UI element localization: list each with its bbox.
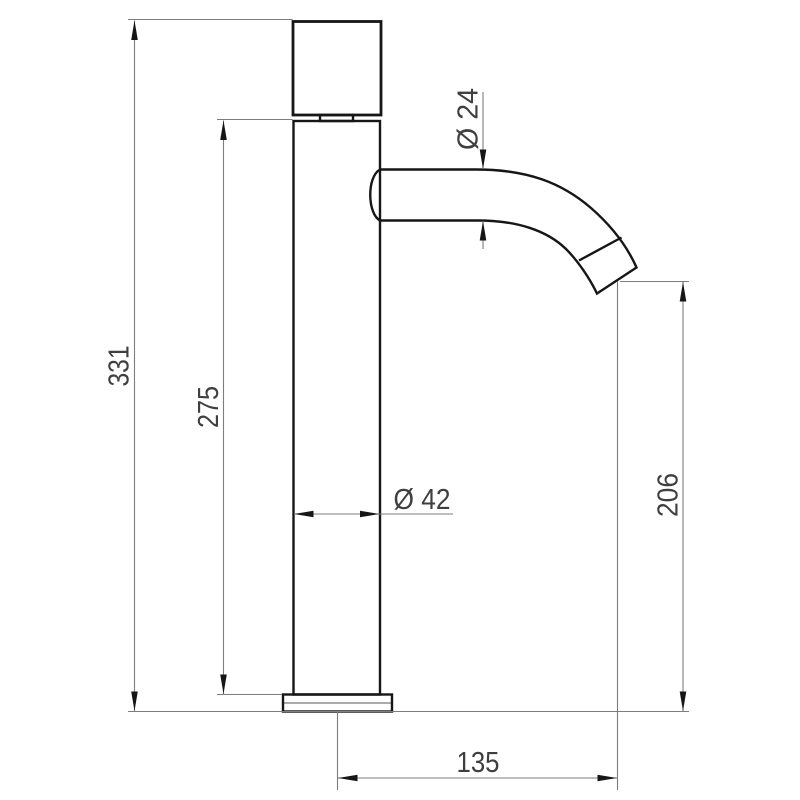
dimension-label-overall-height: 331 bbox=[104, 346, 136, 387]
dimension-label-spout-diameter: Ø 24 bbox=[453, 88, 485, 150]
dimension-outlet-height: 206 bbox=[620, 282, 689, 712]
arrowhead-up-icon bbox=[680, 282, 687, 302]
arrowhead-up-icon bbox=[131, 21, 138, 41]
dimension-label-outlet-height: 206 bbox=[653, 473, 685, 517]
dimension-label-column-diameter: Ø 42 bbox=[394, 484, 451, 516]
dimension-column-height: 275 bbox=[193, 120, 293, 695]
arrowhead-up-icon bbox=[220, 121, 227, 141]
arrowhead-left-icon bbox=[294, 511, 314, 518]
spout bbox=[370, 170, 636, 294]
dimension-label-spout-reach: 135 bbox=[457, 747, 500, 779]
technical-drawing-page: 331 275 Ø 42 Ø 24 206 bbox=[0, 0, 800, 800]
body-column bbox=[294, 121, 381, 695]
arrowhead-down-icon bbox=[680, 692, 687, 712]
arrowhead-left-icon bbox=[338, 775, 358, 782]
arrowhead-right-icon bbox=[598, 775, 618, 782]
arrowhead-down-icon bbox=[480, 150, 487, 170]
drawing-canvas: 331 275 Ø 42 Ø 24 206 bbox=[0, 0, 800, 800]
arrowhead-down-icon bbox=[220, 675, 227, 695]
dimension-overall-height: 331 bbox=[104, 20, 293, 712]
dimension-column-diameter: Ø 42 bbox=[294, 484, 453, 517]
handle-knurled-knob bbox=[293, 22, 381, 116]
arrowhead-up-icon bbox=[480, 221, 487, 241]
dimension-spout-reach: 135 bbox=[128, 282, 689, 791]
dimension-label-column-height: 275 bbox=[193, 386, 225, 428]
arrowhead-right-icon bbox=[360, 511, 380, 518]
arrowhead-down-icon bbox=[131, 692, 138, 712]
aerator-joint-line bbox=[579, 238, 622, 261]
